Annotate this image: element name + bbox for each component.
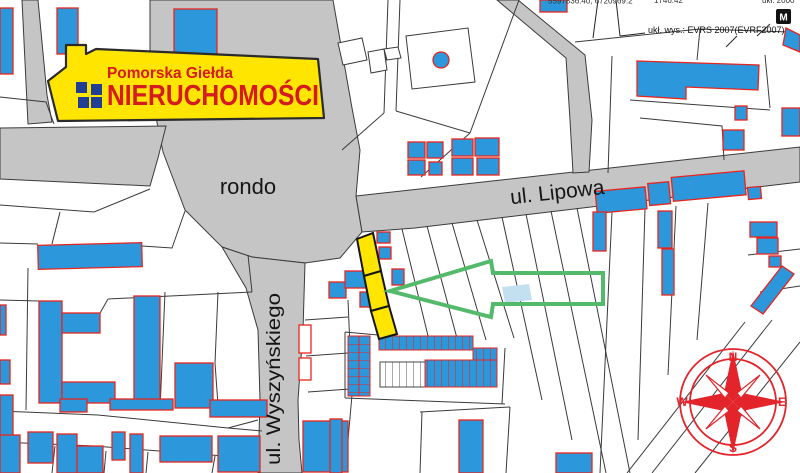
- building: [39, 301, 62, 403]
- pond: [502, 284, 532, 303]
- rect: [91, 97, 102, 108]
- leader: [593, 0, 598, 38]
- parcel-line: [0, 189, 150, 212]
- building: [112, 432, 125, 460]
- building: [392, 269, 404, 285]
- parcel-line: [697, 203, 708, 340]
- g: [681, 350, 785, 454]
- building: [427, 142, 443, 158]
- compass-south: S: [729, 441, 737, 455]
- parcel-line: [308, 389, 350, 392]
- parcel-line: [108, 292, 252, 299]
- building: [218, 436, 260, 472]
- clipped-coords-dark: 5597836.40; 6720969.2: [548, 0, 633, 6]
- building: [110, 399, 173, 410]
- building: [750, 222, 777, 237]
- building: [377, 232, 390, 243]
- parcel-line: [765, 55, 770, 108]
- clipped-coords-red: 1746.42: [654, 0, 683, 5]
- parcel-line: [396, 111, 470, 133]
- compass-west: W: [676, 395, 688, 409]
- building: [757, 238, 778, 254]
- parcel-line: [608, 56, 612, 173]
- parcel-line: [52, 212, 60, 244]
- building: [130, 434, 143, 473]
- building: [77, 446, 103, 473]
- parcel-line: [502, 217, 542, 400]
- label-rondo: rondo: [220, 174, 276, 199]
- rect: [379, 336, 473, 350]
- building: [134, 296, 160, 407]
- building: [452, 139, 473, 156]
- building: [556, 453, 592, 473]
- parcel-line: [452, 223, 486, 340]
- logo-main-line: NIERUCHOMOŚCI: [107, 80, 319, 112]
- parcel-line: [228, 420, 258, 428]
- parcel-line: [640, 118, 724, 160]
- building: [783, 28, 800, 52]
- bldw: [299, 325, 311, 353]
- parcel-line: [470, 0, 519, 133]
- parcel-line: [506, 407, 510, 473]
- rect: [76, 82, 87, 93]
- parcel-line: [0, 243, 38, 244]
- label-wyszynskiego: ul. Wyszyńskiego: [264, 293, 285, 465]
- parcel-line: [345, 398, 505, 404]
- leader: [726, 36, 737, 47]
- map-marker-label: M: [779, 13, 787, 24]
- building: [379, 247, 391, 259]
- parcel-line: [160, 292, 165, 410]
- compass-rose: N S W E: [676, 349, 786, 455]
- building: [210, 400, 267, 417]
- parcel-line: [420, 407, 510, 412]
- building: [475, 138, 499, 156]
- building: [60, 399, 87, 412]
- parcel-line: [638, 209, 645, 440]
- map-page: rondo ul. Lipowa ul. Wyszyńskiego Pomors…: [0, 0, 800, 473]
- rect: [425, 360, 497, 387]
- parcel-line: [420, 412, 422, 473]
- road-west: [0, 126, 166, 186]
- parcel-line: [215, 292, 218, 405]
- building: [658, 211, 672, 248]
- building: [751, 266, 794, 314]
- bldw: [299, 358, 311, 380]
- parcel-line: [477, 220, 514, 338]
- parcel-line: [526, 214, 572, 440]
- building: [408, 142, 425, 158]
- building: [648, 182, 671, 206]
- building: [174, 9, 217, 56]
- parcel-line: [305, 317, 348, 320]
- round-building: [433, 52, 449, 68]
- building: [735, 106, 747, 120]
- rect: [91, 84, 102, 95]
- building: [593, 212, 606, 251]
- parcel-line: [630, 100, 770, 110]
- building: [329, 282, 346, 298]
- rect: [473, 348, 497, 361]
- empty-parcel: [384, 47, 401, 60]
- parcel-line: [502, 348, 505, 404]
- building: [429, 162, 442, 175]
- map-canvas: rondo ul. Lipowa ul. Wyszyńskiego Pomors…: [0, 0, 800, 473]
- parcel-line: [104, 451, 106, 473]
- agency-logo: Pomorska Giełda NIERUCHOMOŚCI: [48, 45, 324, 121]
- building: [747, 186, 761, 199]
- building: [452, 158, 473, 175]
- building: [782, 108, 800, 136]
- parcel-line: [26, 268, 28, 410]
- parcel-line: [427, 226, 458, 342]
- empty-parcel: [368, 49, 387, 73]
- compass-north: N: [729, 350, 738, 364]
- empty-parcel: [338, 38, 367, 65]
- building: [662, 249, 674, 295]
- rect: [78, 97, 89, 108]
- building: [459, 420, 483, 473]
- building: [769, 256, 781, 267]
- large-building: [637, 61, 759, 99]
- building: [0, 8, 13, 74]
- building: [0, 305, 6, 335]
- building: [0, 435, 20, 473]
- datum-label: ukł. wys.: EVRS 2007(EVRF2007): [648, 25, 785, 35]
- building: [57, 434, 77, 473]
- building: [175, 363, 213, 408]
- top-annotations: 5597836.40; 6720969.2 1746.42 ukł. 2000 …: [548, 0, 795, 47]
- parcel-line: [0, 300, 39, 301]
- yellow: [371, 306, 397, 339]
- building: [723, 130, 744, 150]
- parcel-line: [146, 452, 148, 473]
- building: [62, 313, 100, 333]
- building: [28, 432, 53, 463]
- garage-rows: [348, 336, 497, 396]
- clipped-text-right: ukł. 2000: [762, 0, 795, 5]
- parcel-line: [142, 211, 185, 248]
- building: [160, 436, 212, 462]
- parcel-line: [100, 299, 108, 313]
- compass-east: E: [778, 395, 786, 409]
- building: [477, 158, 499, 175]
- building: [0, 360, 10, 384]
- building: [330, 419, 342, 473]
- road-northeast: [497, 0, 592, 173]
- parcel-line: [306, 353, 348, 356]
- rect: [380, 362, 425, 387]
- building: [38, 243, 143, 270]
- building: [408, 160, 425, 175]
